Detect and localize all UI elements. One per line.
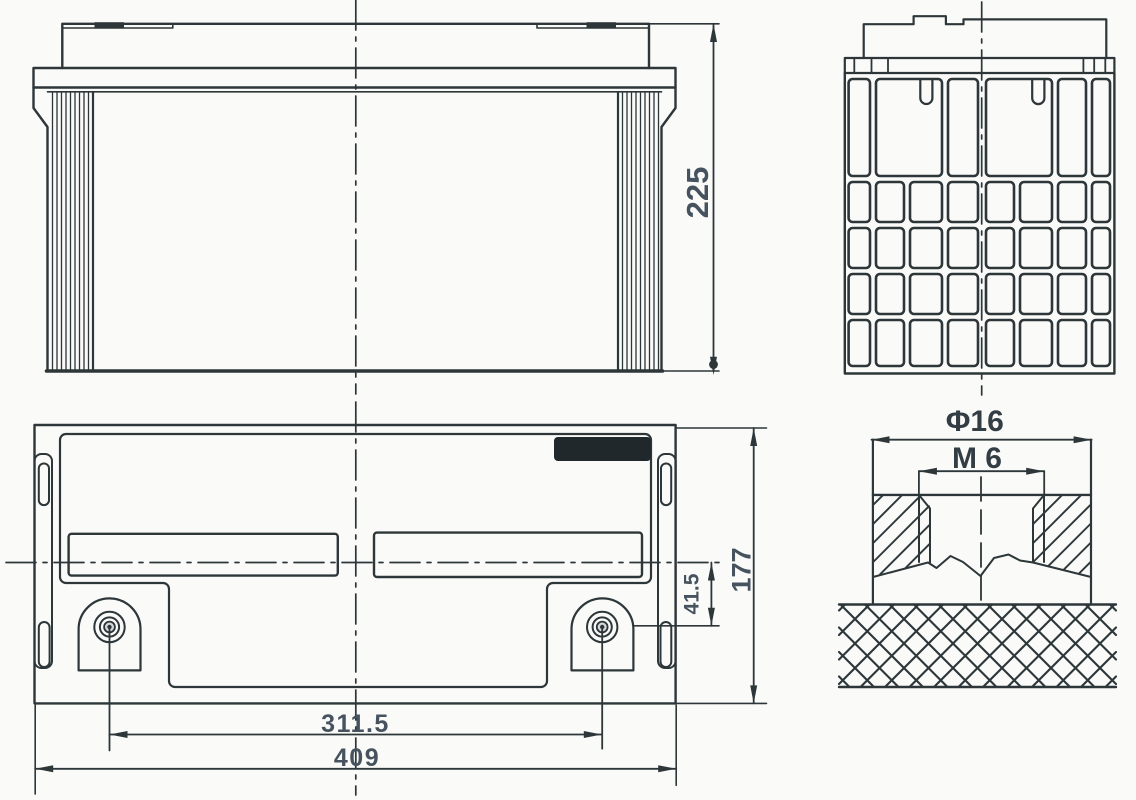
svg-text:311.5: 311.5	[321, 710, 390, 738]
svg-text:M 6: M 6	[952, 442, 1002, 475]
svg-text:177: 177	[726, 547, 756, 592]
svg-text:41.5: 41.5	[681, 573, 704, 614]
svg-text:225: 225	[680, 167, 715, 219]
svg-text:409: 409	[334, 744, 380, 772]
svg-text:Φ16: Φ16	[946, 405, 1004, 438]
